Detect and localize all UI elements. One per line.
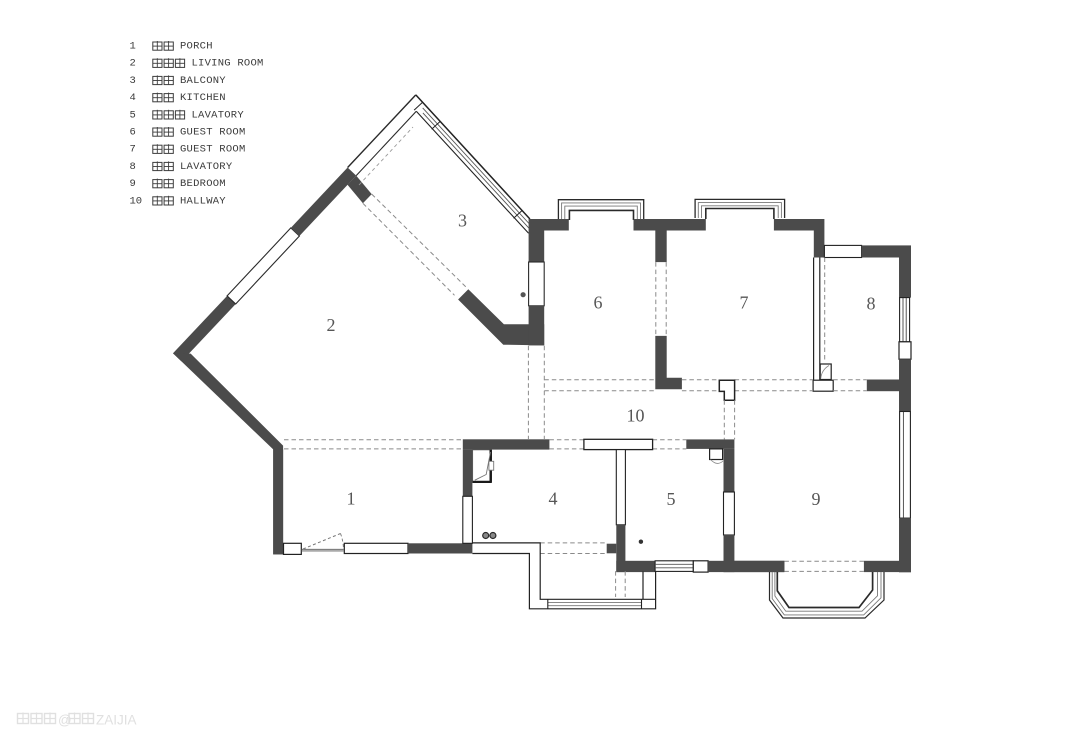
svg-text:3: 3 — [130, 75, 136, 87]
svg-text:LAVATORY: LAVATORY — [192, 109, 245, 121]
svg-text:LAVATORY: LAVATORY — [180, 161, 233, 173]
svg-text:ZAIJIA: ZAIJIA — [96, 713, 137, 728]
svg-text:6: 6 — [130, 127, 136, 139]
svg-text:10: 10 — [130, 195, 143, 207]
svg-text:4: 4 — [130, 92, 136, 104]
svg-text:KITCHEN: KITCHEN — [180, 92, 226, 104]
svg-text:5: 5 — [667, 489, 676, 509]
svg-text:10: 10 — [627, 406, 645, 426]
svg-text:2: 2 — [130, 58, 136, 70]
svg-text:BEDROOM: BEDROOM — [180, 178, 226, 190]
svg-text:9: 9 — [130, 178, 136, 190]
svg-text:1: 1 — [130, 41, 136, 53]
svg-text:2: 2 — [327, 315, 336, 335]
svg-text:1: 1 — [347, 489, 356, 509]
svg-text:GUEST ROOM: GUEST ROOM — [180, 127, 246, 139]
svg-text:HALLWAY: HALLWAY — [180, 195, 226, 207]
svg-text:PORCH: PORCH — [180, 41, 213, 53]
svg-text:7: 7 — [130, 144, 136, 156]
svg-text:5: 5 — [130, 109, 136, 121]
svg-text:GUEST ROOM: GUEST ROOM — [180, 144, 246, 156]
svg-text:9: 9 — [812, 489, 821, 509]
svg-text:3: 3 — [458, 211, 467, 231]
svg-text:8: 8 — [130, 161, 136, 173]
svg-text:4: 4 — [549, 489, 558, 509]
svg-text:6: 6 — [594, 293, 603, 313]
svg-text:8: 8 — [867, 294, 876, 314]
svg-text:BALCONY: BALCONY — [180, 75, 226, 87]
svg-text:7: 7 — [740, 293, 749, 313]
svg-text:LIVING ROOM: LIVING ROOM — [192, 58, 264, 70]
